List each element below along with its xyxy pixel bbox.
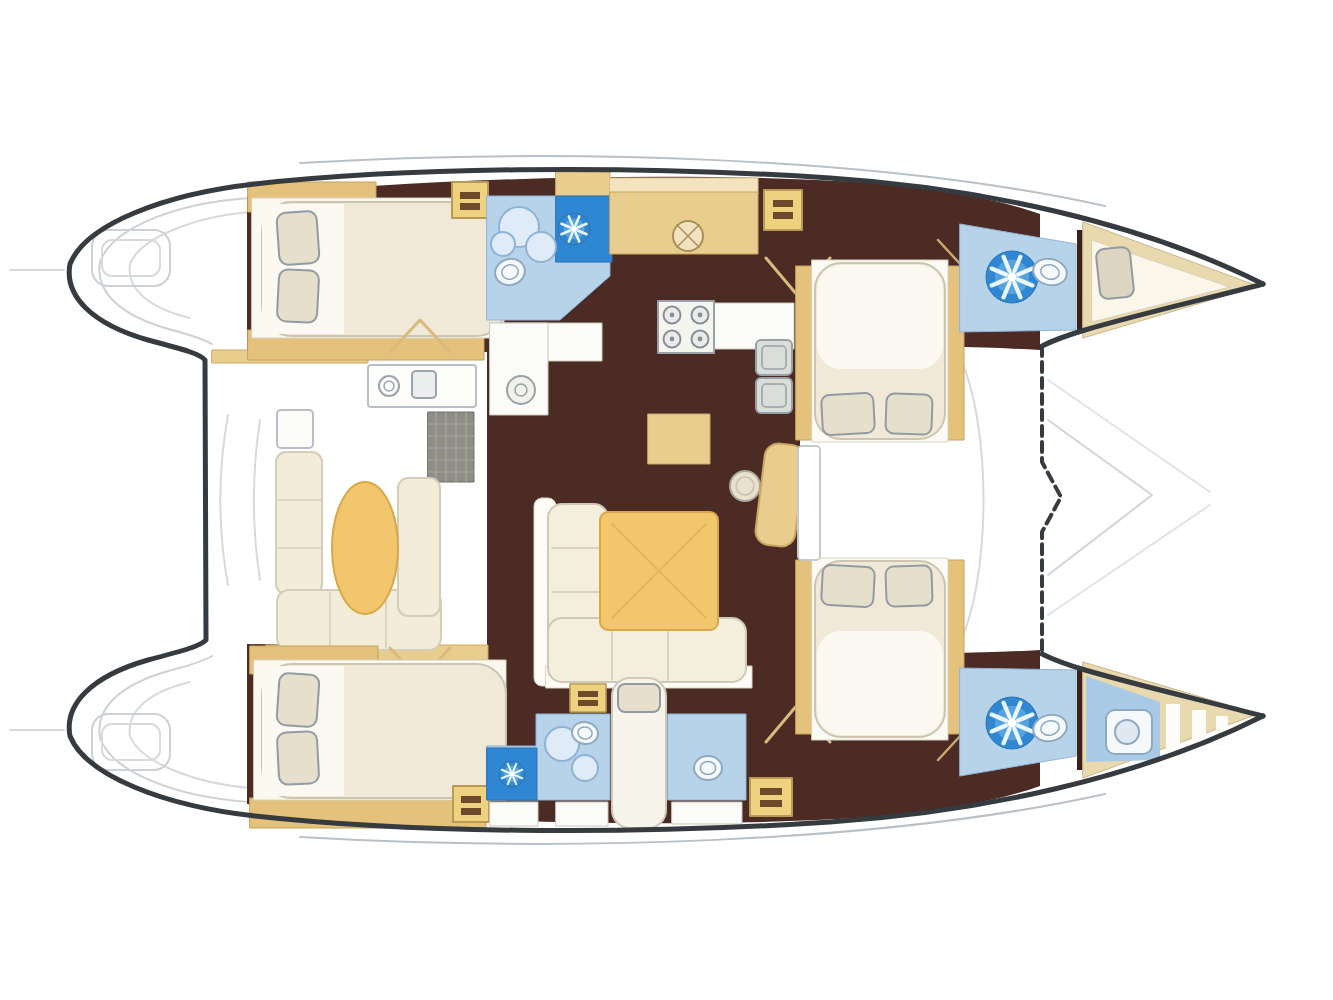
companionway-cabinet-port-aft [452,182,488,218]
davit-sketch-2 [254,420,260,580]
fwd-cockpit-door [798,446,820,560]
cockpit-faucet-unit [412,371,436,398]
cockpit-bench-right [398,478,440,616]
hull-edge-counter [672,802,742,824]
companionway-cabinet-stbd-fwd [750,778,792,816]
fwd-stbd-bed-pillow-1 [821,565,875,608]
bow-toilet [1115,720,1139,744]
shower-jet-stbd-aft [499,761,525,787]
cabinet-icon-bar [578,700,598,706]
fwd-stbd-bed-duvet [817,631,943,735]
vberth-port-pillow [1095,246,1134,299]
cabinet-icon-bar [760,788,782,795]
cabinet-icon-bar [460,203,480,210]
companionway-cabinet-stbd-aft [453,786,489,822]
shower-jet-port-aft [558,213,590,245]
cockpit-sink [379,376,399,396]
shower-tray-lobe [526,232,556,262]
galley-island [648,414,710,464]
stove-burner [692,331,709,348]
stove-burner [692,307,709,324]
cabinet-icon-bar [773,212,793,219]
floorplan-svg [0,0,1333,1000]
hull-edge-counter [556,802,608,826]
fwd-stbd-bed-rail-left [796,560,812,734]
davit-sketch-1 [221,415,229,585]
stern-sketch-bottom-inner [130,682,252,788]
aft-stbd-bed-pillow-2 [277,731,320,785]
aft-stbd-bed-pillow-1 [276,673,320,728]
stove-burner [664,331,681,348]
fwd-port-bed-pillow-1 [821,393,875,436]
companionway-cabinet-mid [570,684,606,712]
fwd-stbd-bed-pillow-2 [885,565,932,607]
trampoline-sketch-v [1048,420,1152,575]
cockpit-table [332,482,398,614]
cabinet-icon-bar [760,800,782,807]
skipper-berth-pillow [618,684,660,712]
galley-side-fixture [507,376,535,404]
cabinet-icon-bar [773,200,793,207]
galley-hull-top-trim [556,172,610,196]
fwd-port-bed-duvet [817,265,943,369]
cabinet-icon-bar [461,808,481,815]
cabinet-icon-bar [461,796,481,803]
hull-edge-counter [490,802,538,826]
shower-jet-stbd-fwd [986,697,1038,749]
fwd-port-bed-rail-left [796,266,812,440]
cabinet-icon-bar [578,691,598,697]
stove-burner [664,307,681,324]
shower-tray-lobe [572,755,598,781]
cabinet-icon-bar [460,192,480,199]
cockpit-bench-left [276,452,322,594]
toilet-stbd-mid [694,756,722,780]
companionway-cabinet-galley [764,190,802,230]
catamaran-floorplan-page [0,0,1333,1000]
trampoline-sketch-lines [1048,380,1210,615]
aft-port-bed-pillow-1 [276,211,320,266]
fwd-port-bed-pillow-2 [885,393,932,435]
shower-tray-lobe [491,232,515,256]
salon-stool [730,471,760,501]
shower-jet-port-fwd [986,251,1038,303]
cockpit-bench-box [277,410,313,448]
aft-port-bed-pillow-2 [277,269,320,323]
stern-sketch-top-inner [130,212,252,318]
